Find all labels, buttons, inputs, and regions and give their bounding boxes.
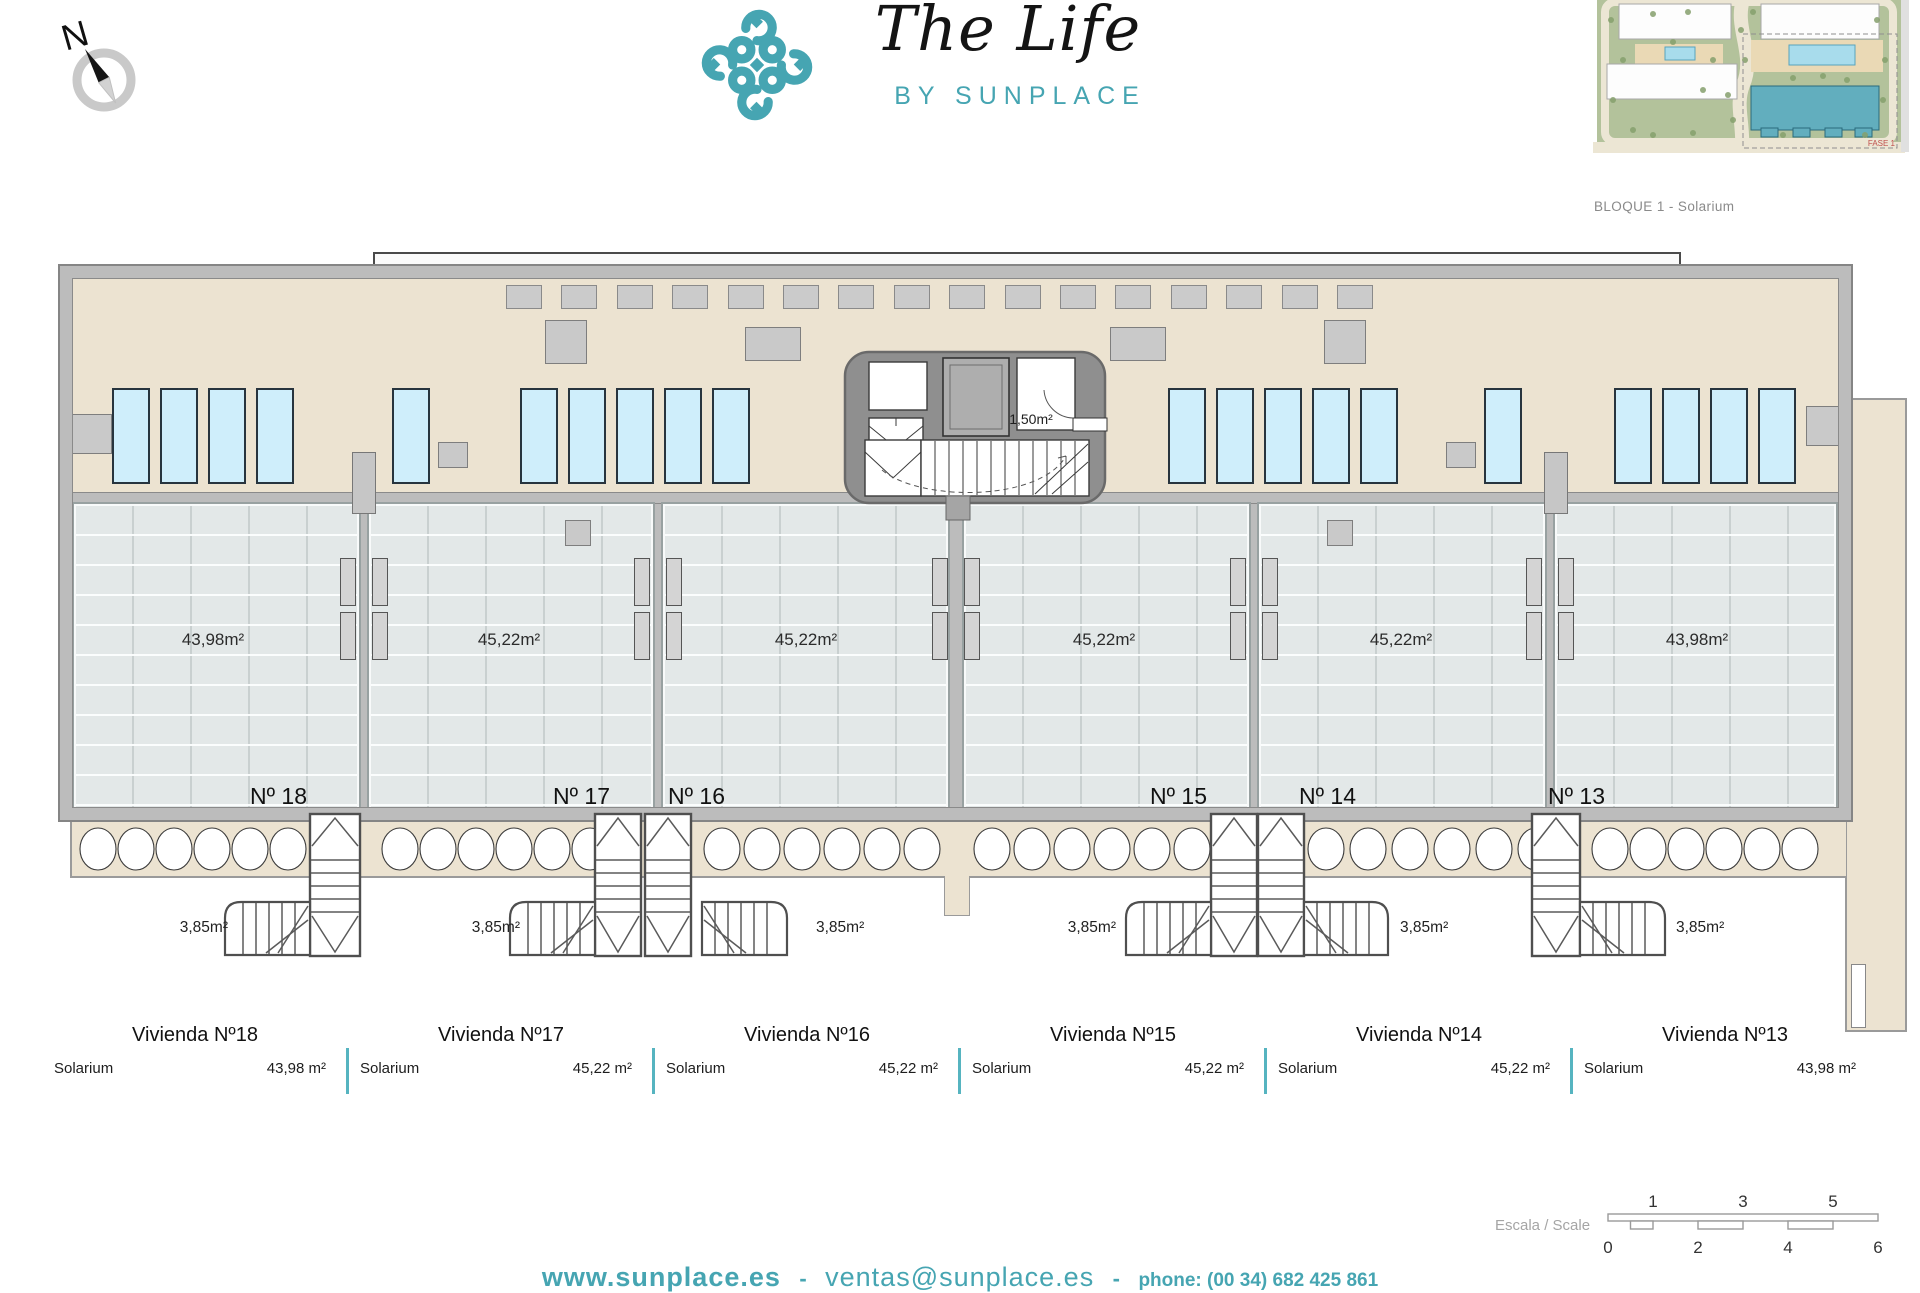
legend-divider <box>1264 1048 1267 1094</box>
stair-flight <box>1304 902 1388 955</box>
bench <box>634 612 650 660</box>
stair-flight <box>225 902 310 955</box>
legend-divider <box>652 1048 655 1094</box>
unit-area-label: 45,22m² <box>775 630 837 650</box>
scale-label: Escala / Scale <box>1495 1217 1590 1234</box>
side-terrace-slot <box>1851 964 1866 1028</box>
solarium-plan-page: { "header": { "compass_label": "N", "log… <box>0 0 1920 1280</box>
bench <box>1558 612 1574 660</box>
scale-tick: 5 <box>1828 1192 1837 1211</box>
legend-title: Vivienda Nº15 <box>960 1024 1266 1047</box>
legend-entry: Vivienda Nº18 Solarium 43,98 m² <box>42 1024 348 1108</box>
legend-entry: Vivienda Nº17 Solarium 45,22 m² <box>348 1024 654 1108</box>
bench <box>340 612 356 660</box>
unit-number-label: Nº 14 <box>1299 783 1356 810</box>
unit-number-label: Nº 16 <box>668 783 725 810</box>
building-outline <box>60 266 1851 820</box>
bench <box>340 558 356 606</box>
legend-room-label: Solarium <box>1584 1060 1643 1077</box>
legend: Vivienda Nº18 Solarium 43,98 m² Vivienda… <box>42 1024 1878 1108</box>
legend-area-value: 45,22 m² <box>573 1060 632 1077</box>
highlighted-block-1 <box>1751 86 1879 137</box>
bench <box>1230 558 1246 606</box>
bench <box>666 558 682 606</box>
legend-title: Vivienda Nº18 <box>42 1024 348 1047</box>
legend-divider <box>958 1048 961 1094</box>
legend-divider <box>346 1048 349 1094</box>
roof-parapet <box>373 252 1681 266</box>
unit-area-label: 43,98m² <box>182 630 244 650</box>
legend-title: Vivienda Nº16 <box>654 1024 960 1047</box>
footer-email-link[interactable]: ventas@sunplace.es <box>825 1262 1094 1292</box>
legend-title: Vivienda Nº13 <box>1572 1024 1878 1047</box>
legend-entry: Vivienda Nº14 Solarium 45,22 m² <box>1266 1024 1572 1108</box>
unit-number-label: Nº 18 <box>250 783 307 810</box>
bench <box>932 612 948 660</box>
bench <box>372 558 388 606</box>
scale-tick: 1 <box>1648 1192 1657 1211</box>
scale-tick: 3 <box>1738 1192 1747 1211</box>
stair-area-label: 3,85m² <box>1400 919 1448 937</box>
scale-tick: 6 <box>1873 1238 1882 1257</box>
legend-entry: Vivienda Nº13 Solarium 43,98 m² <box>1572 1024 1878 1108</box>
compass-north-label: N <box>57 12 93 59</box>
legend-area-value: 45,22 m² <box>1185 1060 1244 1077</box>
bench <box>964 558 980 606</box>
compass-icon: N <box>52 4 152 130</box>
legend-divider <box>1570 1048 1573 1094</box>
bench <box>1526 558 1542 606</box>
bench <box>634 558 650 606</box>
stair-flight <box>510 902 595 955</box>
side-terrace-extension <box>1845 398 1907 1032</box>
bench <box>372 612 388 660</box>
stair-area-label: 3,85m² <box>1068 919 1116 937</box>
bench <box>932 558 948 606</box>
scale-tick: 2 <box>1693 1238 1702 1257</box>
legend-area-value: 45,22 m² <box>879 1060 938 1077</box>
footer-phone: phone: (00 34) 682 425 861 <box>1138 1270 1378 1291</box>
unit-number-label: Nº 13 <box>1548 783 1605 810</box>
legend-room-label: Solarium <box>54 1060 113 1077</box>
footer-website-link[interactable]: www.sunplace.es <box>542 1262 781 1292</box>
scale-bar: Escala / Scale 1350246 <box>1495 1183 1905 1263</box>
site-plan-thumbnail: FASE 1 <box>1593 0 1913 170</box>
stair-area-label: 3,85m² <box>180 919 228 937</box>
bench <box>1526 612 1542 660</box>
footer-separator: - <box>1099 1266 1134 1291</box>
legend-entry: Vivienda Nº15 Solarium 45,22 m² <box>960 1024 1266 1108</box>
unit-area-label: 45,22m² <box>478 630 540 650</box>
unit-number-label: Nº 15 <box>1150 783 1207 810</box>
partition-post <box>1544 452 1568 514</box>
legend-entry: Vivienda Nº16 Solarium 45,22 m² <box>654 1024 960 1108</box>
legend-room-label: Solarium <box>972 1060 1031 1077</box>
stair-area-label: 3,85m² <box>1676 919 1724 937</box>
footer-contact-bar: www.sunplace.es - ventas@sunplace.es - p… <box>0 1262 1920 1293</box>
site-plan-phase-label: FASE 1 <box>1868 139 1896 148</box>
rear-walkway <box>70 820 1846 878</box>
stair-flight <box>1126 902 1211 955</box>
legend-title: Vivienda Nº17 <box>348 1024 654 1047</box>
bench <box>1262 612 1278 660</box>
legend-room-label: Solarium <box>1278 1060 1337 1077</box>
bench <box>1262 558 1278 606</box>
stair-area-label: 3,85m² <box>472 919 520 937</box>
stair-flight <box>702 902 787 955</box>
scale-tick: 0 <box>1603 1238 1612 1257</box>
footer-separator: - <box>785 1266 820 1291</box>
bench <box>1230 612 1246 660</box>
unit-area-label: 43,98m² <box>1666 630 1728 650</box>
stair-flight <box>1580 902 1665 955</box>
legend-area-value: 43,98 m² <box>267 1060 326 1077</box>
bench <box>666 612 682 660</box>
legend-area-value: 45,22 m² <box>1491 1060 1550 1077</box>
bench <box>964 612 980 660</box>
unit-area-label: 45,22m² <box>1370 630 1432 650</box>
partition-post <box>352 452 376 514</box>
unit-number-label: Nº 17 <box>553 783 610 810</box>
walkway-stub <box>944 876 970 916</box>
stair-area-label: 3,85m² <box>816 919 864 937</box>
legend-room-label: Solarium <box>666 1060 725 1077</box>
legend-title: Vivienda Nº14 <box>1266 1024 1572 1047</box>
bench <box>1558 558 1574 606</box>
legend-area-value: 43,98 m² <box>1797 1060 1856 1077</box>
scale-tick: 4 <box>1783 1238 1792 1257</box>
legend-room-label: Solarium <box>360 1060 419 1077</box>
unit-area-label: 45,22m² <box>1073 630 1135 650</box>
